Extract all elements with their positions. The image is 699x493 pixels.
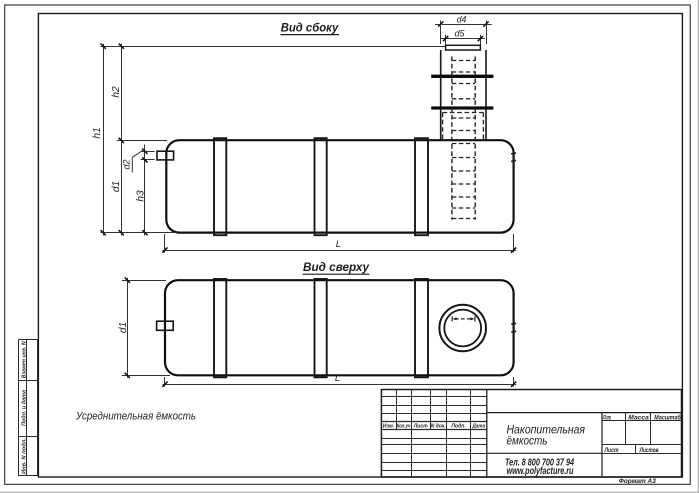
svg-text:d1: d1: [111, 181, 122, 192]
svg-text:Формат А3: Формат А3: [619, 478, 656, 485]
svg-text:Листов: Листов: [639, 447, 659, 454]
svg-text:Дата: Дата: [472, 424, 486, 430]
svg-text:N док.: N док.: [431, 424, 446, 430]
svg-text:h1: h1: [92, 127, 103, 138]
svg-text:Кол.уч: Кол.уч: [397, 424, 411, 430]
svg-text:Лист: Лист: [413, 424, 428, 430]
svg-text:d5: d5: [455, 29, 465, 39]
svg-text:Подп.: Подп.: [451, 424, 466, 430]
svg-text:Лит: Лит: [602, 414, 611, 421]
svg-text:Масса: Масса: [628, 414, 649, 421]
svg-text:Инв. N подл.: Инв. N подл.: [21, 438, 27, 474]
svg-text:ёмкость: ёмкость: [507, 434, 548, 448]
svg-text:Изм.: Изм.: [383, 424, 395, 430]
svg-text:d2: d2: [122, 159, 132, 169]
svg-text:www.polyfacture.ru: www.polyfacture.ru: [507, 466, 574, 477]
svg-text:Масштаб: Масштаб: [654, 413, 681, 421]
svg-text:L: L: [335, 372, 340, 383]
svg-text:Подп. и дата: Подп. и дата: [21, 390, 27, 426]
svg-text:Вид сбоку: Вид сбоку: [281, 21, 340, 35]
svg-text:d4: d4: [457, 14, 467, 24]
svg-text:Вид сверху: Вид сверху: [303, 260, 370, 274]
svg-text:Взамен инв. N: Взамен инв. N: [21, 340, 27, 378]
svg-text:Усреднительная ёмкость: Усреднительная ёмкость: [75, 411, 196, 423]
svg-text:h3: h3: [135, 190, 146, 202]
svg-text:h2: h2: [111, 86, 122, 98]
svg-text:d1: d1: [118, 322, 129, 333]
svg-text:Лист: Лист: [604, 447, 619, 454]
svg-text:L: L: [336, 238, 341, 249]
